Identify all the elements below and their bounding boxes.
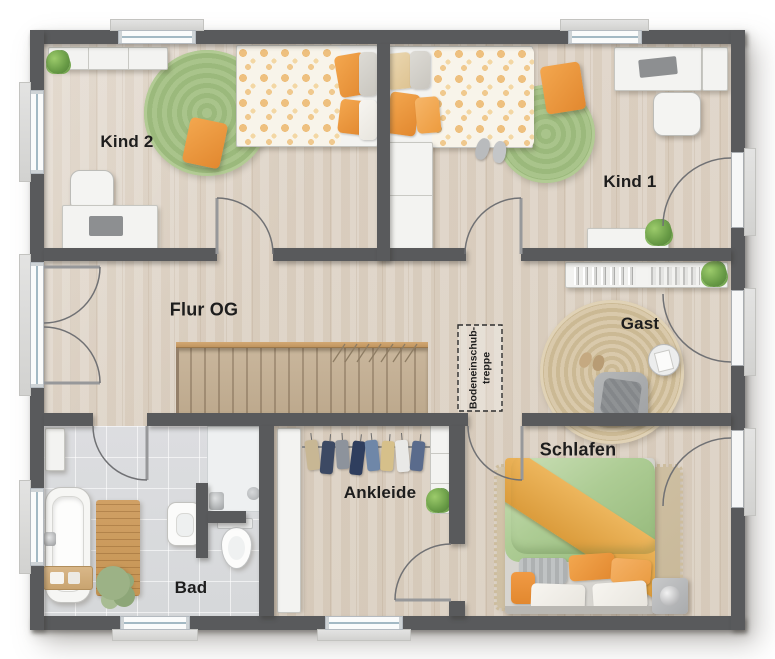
door-arc-flur-bottom: [44, 327, 100, 383]
room-label-bad: Bad: [175, 578, 208, 598]
door-arc-flur-top: [44, 267, 100, 323]
room-label-schlafen: Schlafen: [540, 440, 617, 461]
door-arc-kind1: [465, 198, 521, 254]
stair-break-hatch: [333, 344, 417, 362]
loft-ladder-note-line1: Bodeneinschub-: [467, 327, 480, 409]
door-arc-french-gast: [663, 294, 731, 362]
door-arc-ankleide: [395, 544, 451, 600]
floor-plan: Kind 2 Kind 1 Flur OG Gast Schlafen Ankl…: [0, 0, 775, 659]
door-arc-kind2: [217, 198, 273, 254]
loft-ladder-note-line2: treppe: [480, 327, 493, 409]
door-arc-schlafen: [468, 426, 522, 480]
room-label-ankleide: Ankleide: [344, 483, 416, 503]
room-label-flur: Flur OG: [170, 300, 238, 321]
room-label-kind1: Kind 1: [603, 172, 656, 192]
door-arc-bad: [93, 426, 147, 480]
door-arc-french-schlafen: [663, 438, 731, 506]
room-label-gast: Gast: [621, 314, 660, 334]
room-label-kind2: Kind 2: [100, 132, 153, 152]
loft-ladder-note: Bodeneinschub- treppe: [467, 327, 492, 409]
door-arc-french-kind1: [663, 158, 731, 226]
